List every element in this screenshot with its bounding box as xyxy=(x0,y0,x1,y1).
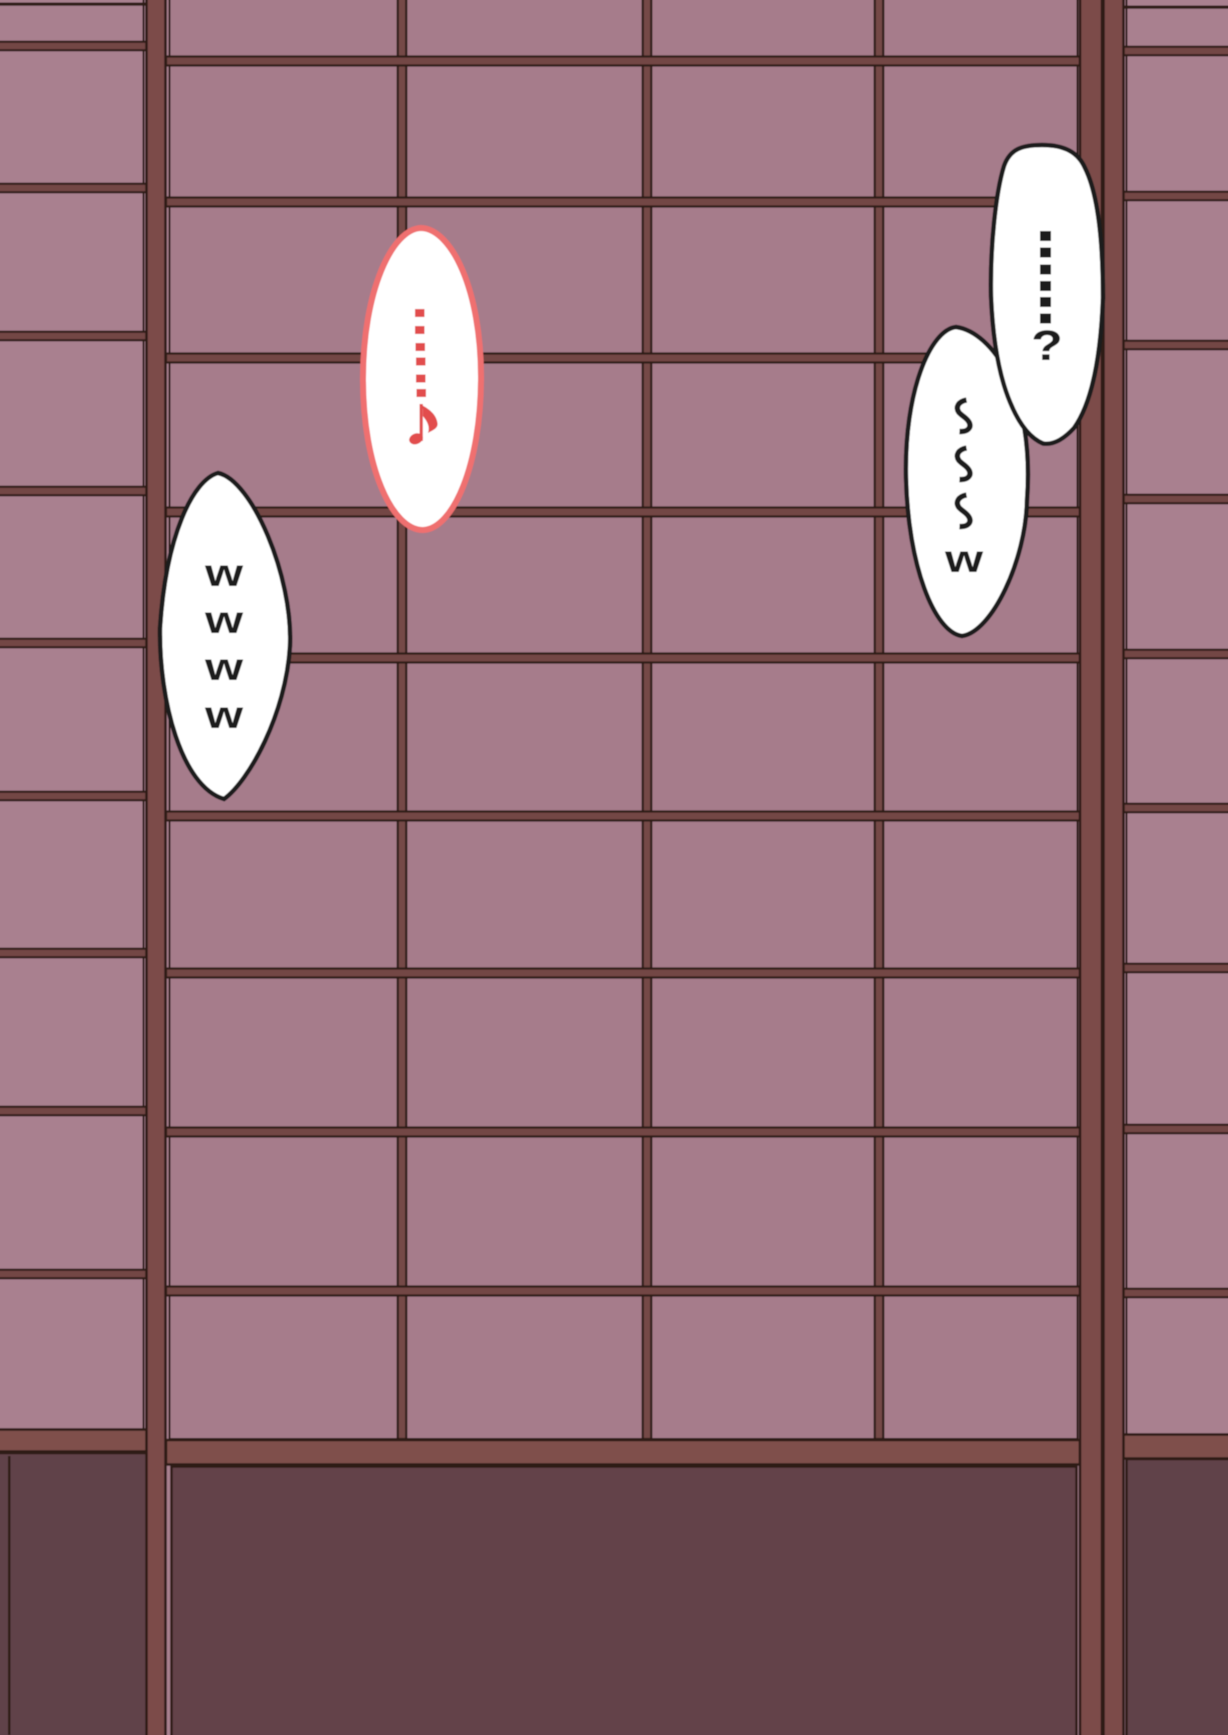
svg-text:w: w xyxy=(204,552,244,595)
svg-text:?: ? xyxy=(1031,322,1063,370)
svg-text:w: w xyxy=(204,694,244,737)
svg-text:w: w xyxy=(944,538,984,581)
svg-text:w: w xyxy=(204,599,244,642)
svg-text:w: w xyxy=(204,646,244,689)
